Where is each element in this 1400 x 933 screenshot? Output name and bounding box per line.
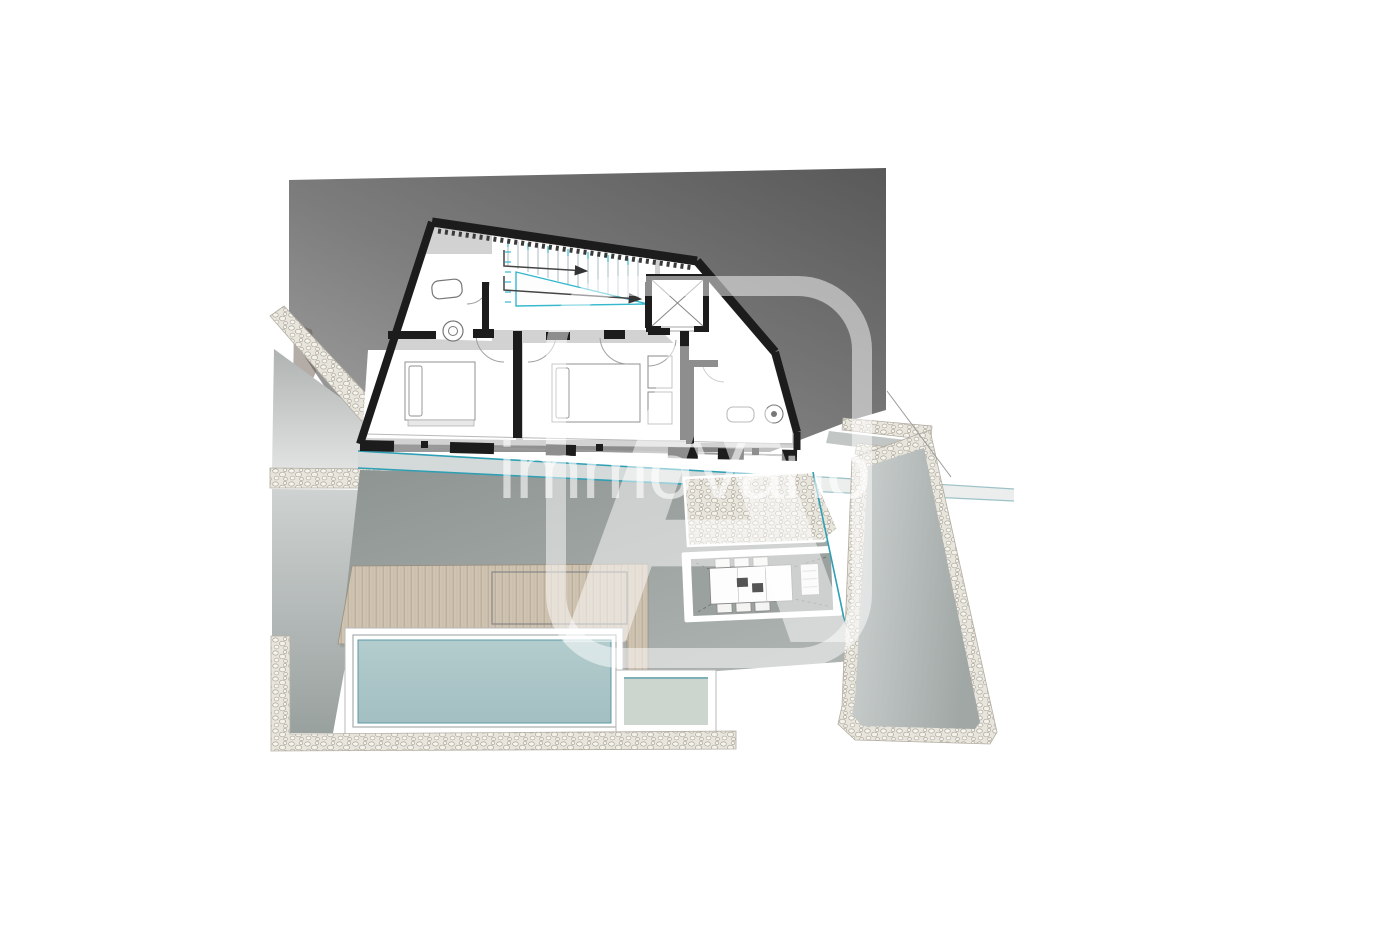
bed-bench bbox=[408, 420, 474, 426]
floor-plan-image: A immoVario bbox=[0, 0, 1400, 933]
floor-plan-svg: A immoVario bbox=[0, 0, 1400, 933]
pillow bbox=[409, 366, 422, 416]
watermark: A immoVario bbox=[498, 254, 870, 734]
sink-icon bbox=[431, 278, 463, 299]
watermark-brand-text: immoVario bbox=[498, 426, 870, 515]
bed-left bbox=[405, 362, 475, 426]
toilet-icon bbox=[443, 321, 463, 341]
